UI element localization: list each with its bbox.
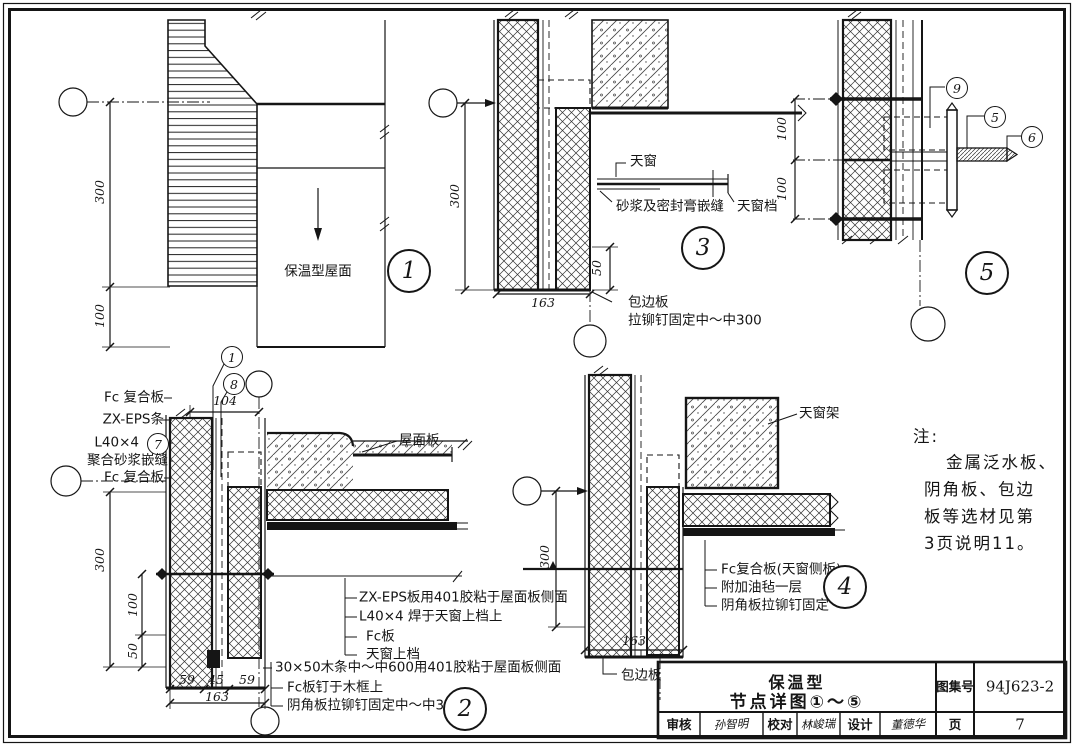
detail1-roof-label: 保温型屋面 (284, 265, 352, 279)
detail2-dim-163: 163 (205, 691, 229, 704)
detail5-callout-6: 6 (1021, 126, 1043, 148)
titleblock-check-signature: 林峻瑞 (800, 718, 835, 731)
detail2-number-bubble: 2 (443, 687, 487, 731)
detail2-left-label-3: L40×4 (94, 436, 139, 450)
detail2-dim-300: 300 (94, 548, 107, 572)
detail4-note-2: 附加油毡一层 (721, 581, 802, 595)
detail3-skylight-label: 天窗 (630, 155, 657, 169)
detail1-dim-300: 300 (94, 180, 107, 204)
detail5-dim-100b: 100 (776, 177, 789, 201)
detail3-sealant-label: 砂浆及密封膏嵌缝 (616, 200, 724, 214)
titleblock-type-title: 保温型 (768, 675, 825, 691)
detail3-number-bubble: 3 (681, 226, 725, 270)
detail4-number-bubble: 4 (823, 565, 867, 609)
detail3-dim-300: 300 (449, 184, 462, 208)
note-line-3: 板等选材见第 (924, 509, 1035, 526)
detail-3-drawing (429, 10, 806, 357)
detail2-note-3: Fc板 (366, 630, 395, 644)
detail4-dim-300: 300 (539, 545, 552, 569)
detail4-note-1: Fc复合板(天窗侧板) (721, 563, 841, 577)
detail2-dim-100: 100 (127, 593, 140, 617)
detail2-dim-59a: 59 (179, 674, 195, 687)
detail5-callout-9: 9 (946, 77, 968, 99)
titleblock-check-label: 校对 (767, 719, 792, 732)
detail5-dim-100a: 100 (776, 117, 789, 141)
titleblock-sheet-title: 节点详图①～⑤ (730, 695, 865, 712)
detail2-note-6: Fc板钉于木框上 (287, 681, 383, 695)
detail2-dim-50: 50 (127, 643, 140, 659)
detail5-number-bubble: 5 (965, 251, 1009, 295)
titleblock-page-label: 页 (949, 719, 962, 732)
detail4-edge-label: 包边板 (621, 669, 662, 683)
detail2-left-label-5: Fc 复合板 (104, 471, 164, 485)
detail2-left-label-2: ZX-EPS条 (103, 413, 164, 427)
detail2-roof-slab-label: 屋面板 (399, 434, 440, 448)
detail3-dim-50: 50 (591, 260, 604, 276)
drawing-sheet: 保温型屋面 300 100 1 1 8 7 Fc 复合板 ZX-EPS条 L40… (0, 0, 1074, 746)
titleblock-design-label: 设计 (847, 719, 872, 732)
detail2-left-label-1: Fc 复合板 (104, 391, 164, 405)
detail2-note-5: 30×50木条中～中600用401胶粘于屋面板侧面 (275, 661, 561, 675)
detail3-stop-label: 天窗档 (737, 200, 778, 214)
detail1-dim-100: 100 (94, 304, 107, 328)
detail2-note-7: 阴角板拉铆钉固定中～中300 (287, 699, 461, 713)
detail2-dim-45: 45 (208, 674, 224, 687)
detail5-callout-5: 5 (984, 106, 1006, 128)
detail4-dim-163: 163 (622, 635, 646, 648)
detail2-left-label-4: 聚合砂浆嵌缝 (87, 454, 168, 468)
note-line-2: 阴角板、包边 (924, 482, 1035, 499)
drawing-canvas (0, 0, 1074, 746)
detail2-note-1: ZX-EPS板用401胶粘于屋面板侧面 (359, 591, 568, 605)
note-head: 注: (913, 429, 939, 446)
detail2-callout-1: 1 (221, 346, 243, 368)
detail2-dim-104: 104 (213, 395, 237, 408)
detail2-callout-8: 8 (223, 373, 245, 395)
titleblock-audit-label: 审核 (666, 719, 691, 732)
note-line-4: 3页说明11。 (924, 536, 1036, 553)
detail3-dim-163: 163 (531, 297, 555, 310)
detail3-edge-label-2: 拉铆钉固定中～中300 (628, 314, 762, 328)
titleblock-design-signature: 董德华 (890, 718, 925, 731)
titleblock-atlas-number: 94J623-2 (986, 680, 1054, 695)
detail3-edge-label-1: 包边板 (628, 296, 669, 310)
detail2-dim-59b: 59 (239, 674, 255, 687)
detail-1-drawing (59, 10, 389, 351)
detail1-number-bubble: 1 (387, 249, 431, 293)
detail2-note-2: L40×4 焊于天窗上档上 (359, 610, 502, 624)
titleblock-audit-signature: 孙智明 (713, 718, 748, 731)
detail4-frame-label: 天窗架 (799, 407, 840, 421)
note-line-1: 金属泛水板、 (946, 455, 1057, 472)
detail-4-drawing (513, 366, 845, 700)
detail4-note-3: 阴角板拉铆钉固定 (721, 599, 829, 613)
titleblock-page-number: 7 (1015, 718, 1025, 733)
titleblock-atlas-label: 图集号 (936, 681, 974, 694)
